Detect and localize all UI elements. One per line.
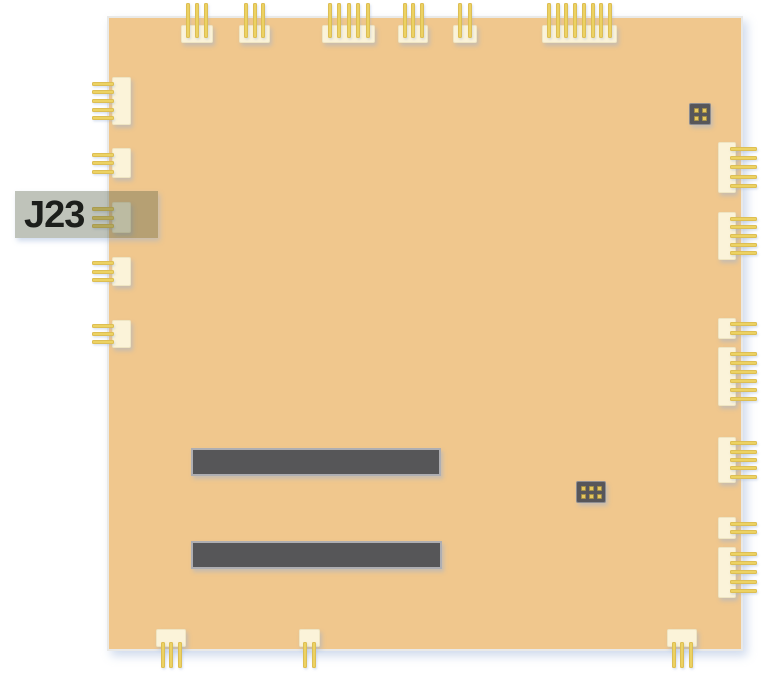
pin bbox=[730, 147, 757, 151]
connector-pins bbox=[730, 547, 757, 598]
pin bbox=[195, 3, 199, 38]
pin bbox=[556, 3, 560, 38]
pin bbox=[92, 82, 114, 86]
connector-top-2 bbox=[239, 3, 270, 43]
connector-body bbox=[112, 77, 131, 125]
pin bbox=[730, 322, 757, 326]
connector-right-7 bbox=[718, 547, 757, 598]
pin bbox=[730, 217, 757, 221]
connector-highlight-j23: J23 bbox=[15, 191, 158, 238]
pin bbox=[730, 165, 757, 169]
pin bbox=[730, 243, 757, 247]
pin bbox=[730, 370, 757, 374]
pin bbox=[730, 561, 757, 565]
connector-pins bbox=[299, 642, 320, 668]
pin bbox=[328, 3, 332, 38]
pin bbox=[730, 234, 757, 238]
pin bbox=[730, 450, 757, 454]
chip-pad bbox=[597, 494, 602, 499]
connector-bottom-2 bbox=[299, 629, 320, 668]
connector-pins bbox=[92, 77, 114, 125]
connector-top-5 bbox=[453, 3, 477, 43]
pin bbox=[730, 361, 757, 365]
pin bbox=[730, 352, 757, 356]
pin bbox=[312, 642, 316, 668]
connector-top-1 bbox=[181, 3, 213, 43]
connector-label: J23 bbox=[15, 196, 84, 234]
pin bbox=[730, 225, 757, 229]
chip-pad bbox=[581, 494, 586, 499]
chip-pad bbox=[589, 486, 594, 491]
pin bbox=[92, 261, 114, 265]
connector-pins bbox=[92, 257, 114, 286]
pin bbox=[186, 3, 190, 38]
pin bbox=[169, 642, 173, 668]
chip-pad bbox=[694, 108, 699, 113]
connector-pins bbox=[453, 3, 477, 38]
pin bbox=[204, 3, 208, 38]
connector-left-2 bbox=[92, 148, 132, 178]
connector-top-4 bbox=[398, 3, 428, 43]
connector-body bbox=[112, 257, 131, 286]
pin bbox=[730, 589, 757, 593]
pin bbox=[689, 642, 693, 668]
pin bbox=[468, 3, 472, 38]
pin bbox=[730, 570, 757, 574]
connector-pins bbox=[730, 517, 757, 539]
connector-left-1 bbox=[92, 77, 132, 125]
connector-pins bbox=[239, 3, 270, 38]
pin bbox=[244, 3, 248, 38]
connector-bottom-1 bbox=[156, 629, 186, 668]
pin bbox=[547, 3, 551, 38]
pin bbox=[403, 3, 407, 38]
pin bbox=[420, 3, 424, 38]
pin bbox=[178, 642, 182, 668]
memory-slot-1 bbox=[191, 448, 441, 476]
pin bbox=[730, 331, 757, 335]
pin bbox=[92, 161, 114, 165]
pin bbox=[347, 3, 351, 38]
connector-right-1 bbox=[718, 142, 757, 193]
pin bbox=[92, 332, 114, 336]
memory-slot-2 bbox=[191, 541, 442, 569]
pin bbox=[92, 278, 114, 282]
connector-right-6 bbox=[718, 517, 757, 539]
connector-body bbox=[112, 148, 131, 178]
connector-bottom-3 bbox=[667, 629, 697, 668]
pin bbox=[303, 642, 307, 668]
pin bbox=[730, 441, 757, 445]
pin bbox=[564, 3, 568, 38]
pin bbox=[161, 642, 165, 668]
connector-pins bbox=[92, 320, 114, 348]
pin bbox=[573, 3, 577, 38]
pin bbox=[608, 3, 612, 38]
pin bbox=[92, 116, 114, 120]
pin bbox=[92, 340, 114, 344]
connector-left-4 bbox=[92, 257, 132, 286]
connector-pins bbox=[730, 437, 757, 483]
connector-right-3 bbox=[718, 318, 757, 339]
connector-right-4 bbox=[718, 347, 757, 406]
connector-pins bbox=[542, 3, 617, 38]
connector-pins bbox=[730, 318, 757, 339]
connector-pins bbox=[730, 212, 757, 260]
pin bbox=[730, 552, 757, 556]
pin bbox=[730, 379, 757, 383]
pin bbox=[411, 3, 415, 38]
connector-pins bbox=[730, 347, 757, 406]
smd-chip-2 bbox=[576, 481, 606, 503]
pin bbox=[591, 3, 595, 38]
connector-pins bbox=[730, 142, 757, 193]
connector-top-6 bbox=[542, 3, 617, 43]
pin bbox=[730, 580, 757, 584]
pin bbox=[730, 522, 757, 526]
connector-pins bbox=[156, 642, 186, 668]
chip-pad bbox=[589, 494, 594, 499]
smd-chip-1 bbox=[689, 103, 711, 125]
connector-right-2 bbox=[718, 212, 757, 260]
chip-pad bbox=[702, 108, 707, 113]
pin bbox=[730, 530, 757, 534]
pin bbox=[92, 99, 114, 103]
pin bbox=[337, 3, 341, 38]
pin bbox=[680, 642, 684, 668]
pin bbox=[730, 184, 757, 188]
pin bbox=[730, 156, 757, 160]
connector-pins bbox=[667, 642, 697, 668]
pin bbox=[730, 397, 757, 401]
pin bbox=[730, 466, 757, 470]
pin bbox=[253, 3, 257, 38]
pin bbox=[582, 3, 586, 38]
connector-pins bbox=[181, 3, 213, 38]
connector-pins bbox=[322, 3, 375, 38]
chip-pad bbox=[581, 486, 586, 491]
pin bbox=[730, 388, 757, 392]
pin bbox=[730, 175, 757, 179]
chip-pad bbox=[694, 116, 699, 121]
pin bbox=[92, 270, 114, 274]
connector-pins bbox=[398, 3, 428, 38]
pin bbox=[366, 3, 370, 38]
pin bbox=[92, 108, 114, 112]
chip-pad bbox=[597, 486, 602, 491]
connector-body bbox=[112, 320, 131, 348]
pin bbox=[730, 475, 757, 479]
pin bbox=[92, 90, 114, 94]
connector-top-3 bbox=[322, 3, 375, 43]
connector-pins bbox=[92, 148, 114, 178]
pin bbox=[599, 3, 603, 38]
pin bbox=[730, 458, 757, 462]
chip-pad bbox=[702, 116, 707, 121]
pcb-diagram: J23 bbox=[0, 0, 764, 680]
pin bbox=[672, 642, 676, 668]
pin bbox=[92, 170, 114, 174]
pin bbox=[458, 3, 462, 38]
pin bbox=[356, 3, 360, 38]
pin bbox=[261, 3, 265, 38]
connector-left-5 bbox=[92, 320, 132, 348]
pin bbox=[92, 153, 114, 157]
pin bbox=[730, 251, 757, 255]
pin bbox=[92, 324, 114, 328]
connector-right-5 bbox=[718, 437, 757, 483]
